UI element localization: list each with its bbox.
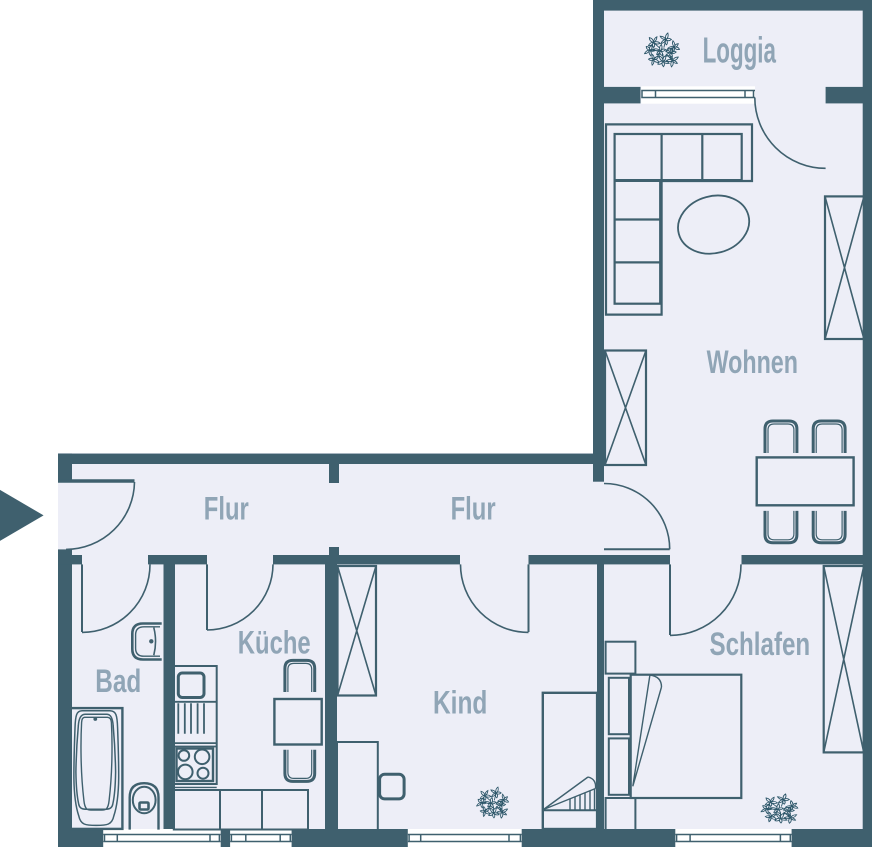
svg-text:Flur: Flur bbox=[451, 490, 496, 526]
svg-text:Küche: Küche bbox=[238, 624, 311, 660]
svg-text:Schlafen: Schlafen bbox=[710, 627, 811, 663]
svg-text:Bad: Bad bbox=[95, 664, 141, 700]
svg-text:Flur: Flur bbox=[204, 490, 249, 526]
svg-text:Wohnen: Wohnen bbox=[707, 345, 798, 380]
svg-text:Kind: Kind bbox=[433, 685, 487, 721]
svg-text:Loggia: Loggia bbox=[703, 31, 777, 71]
